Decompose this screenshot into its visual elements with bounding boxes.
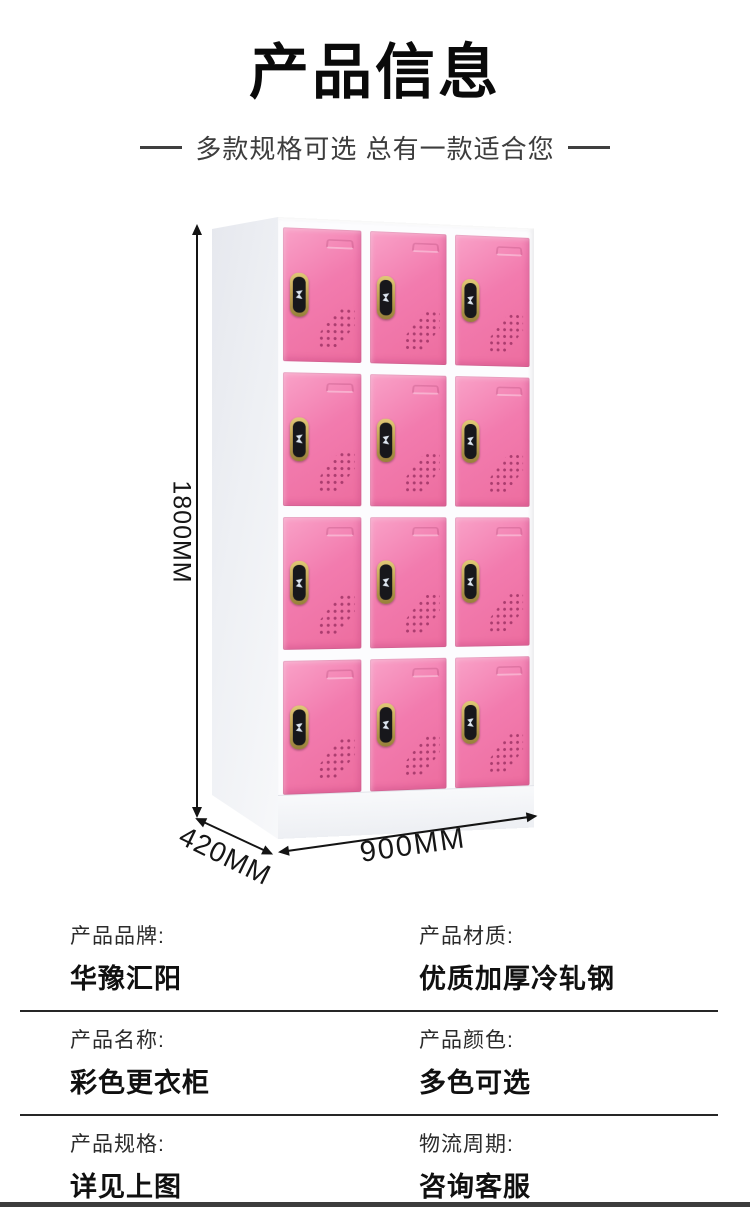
locker-door [455,235,530,367]
spec-value: 咨询客服 [419,1165,718,1204]
locker-door [370,517,446,649]
door-vent-holes-icon [406,311,440,353]
locker-door [283,372,361,506]
lock-emblem-icon [296,579,303,588]
lock-emblem-icon [383,436,390,445]
door-handle-recess [496,526,523,535]
door-lock [462,701,480,744]
door-handle-recess [326,383,355,393]
spec-cell-name: 产品名称: 彩色更衣柜 [20,1024,369,1100]
door-handle-recess [326,239,355,250]
lock-emblem-icon [467,577,474,586]
door-handle-recess [412,243,440,253]
door-handle-recess [412,526,440,535]
lock-emblem-icon [383,578,390,587]
door-handle-recess [326,526,355,535]
locker-cabinet-image [212,217,546,839]
lock-emblem-icon [383,293,390,302]
spec-label: 产品材质: [419,920,718,950]
locker-front-face [278,217,534,839]
door-vent-holes-icon [406,453,440,494]
locker-door [370,231,446,365]
lock-emblem-icon [296,290,303,299]
door-vent-holes-icon [319,308,354,351]
lock-emblem-icon [296,723,303,732]
door-handle-recess [412,668,440,678]
door-lock [290,561,309,605]
lock-emblem-icon [467,718,474,727]
locker-door [455,517,530,647]
locker-side-panel [212,217,278,839]
door-handle-recess [326,670,355,680]
spec-label: 产品规格: [70,1128,369,1158]
height-dimension-arrow [196,226,198,816]
door-vent-holes-icon [319,452,354,494]
spec-value: 彩色更衣柜 [70,1061,369,1100]
door-lock [462,420,480,463]
locker-door [283,517,361,651]
door-vent-holes-icon [319,595,354,637]
door-lock [290,417,309,461]
door-vent-holes-icon [490,454,523,495]
door-vent-holes-icon [406,736,440,778]
door-lock [377,418,395,462]
door-vent-holes-icon [406,595,440,637]
locker-door [455,376,530,507]
locker-door [370,658,446,791]
spec-value: 多色可选 [419,1061,718,1100]
lock-emblem-icon [383,720,390,729]
locker-door [283,660,361,795]
spec-cell-logistics: 物流周期: 咨询客服 [369,1128,718,1204]
height-dimension-label: 1800MM [167,480,196,583]
spec-value: 华豫汇阳 [70,957,369,996]
spec-value: 优质加厚冷轧钢 [419,957,718,996]
lock-emblem-icon [467,437,474,446]
door-handle-recess [496,386,523,396]
lock-emblem-icon [467,296,474,305]
page-subtitle: 多款规格可选 总有一款适合您 [0,129,750,166]
spec-row: 产品规格: 详见上图 物流周期: 咨询客服 [20,1116,718,1207]
door-lock [462,560,480,603]
product-info-page: 产品信息 多款规格可选 总有一款适合您 [0,0,750,1207]
door-vent-holes-icon [490,314,523,356]
next-section-divider [0,1202,750,1207]
door-handle-recess [412,385,440,395]
spec-table: 产品品牌: 华豫汇阳 产品材质: 优质加厚冷轧钢 产品名称: 彩色更衣柜 产品颜… [20,908,718,1207]
door-vent-holes-icon [490,733,523,775]
spec-label: 产品品牌: [70,920,369,950]
subtitle-text: 多款规格可选 总有一款适合您 [195,129,554,166]
door-handle-recess [496,246,523,256]
page-title: 产品信息 [0,24,750,111]
locker-door [455,656,530,788]
spec-row: 产品名称: 彩色更衣柜 产品颜色: 多色可选 [20,1012,718,1116]
door-lock [377,561,395,604]
door-lock [290,705,309,749]
spec-cell-spec: 产品规格: 详见上图 [20,1128,369,1204]
door-lock [462,279,480,322]
spec-cell-color: 产品颜色: 多色可选 [369,1024,718,1100]
spec-cell-brand: 产品品牌: 华豫汇阳 [20,920,369,996]
spec-value: 详见上图 [70,1165,369,1204]
spec-label: 物流周期: [419,1128,718,1158]
door-lock [377,276,395,320]
door-lock [290,272,309,316]
door-handle-recess [496,666,523,676]
spec-label: 产品颜色: [419,1024,718,1054]
door-grid [283,227,530,795]
door-lock [377,703,395,747]
door-vent-holes-icon [490,594,523,635]
subtitle-dash-left [140,146,182,149]
locker-door [370,374,446,506]
subtitle-dash-right [568,146,610,149]
spec-row: 产品品牌: 华豫汇阳 产品材质: 优质加厚冷轧钢 [20,908,718,1012]
lock-emblem-icon [296,434,303,443]
spec-cell-material: 产品材质: 优质加厚冷轧钢 [369,920,718,996]
door-vent-holes-icon [319,739,354,782]
locker-door [283,227,361,363]
spec-label: 产品名称: [70,1024,369,1054]
